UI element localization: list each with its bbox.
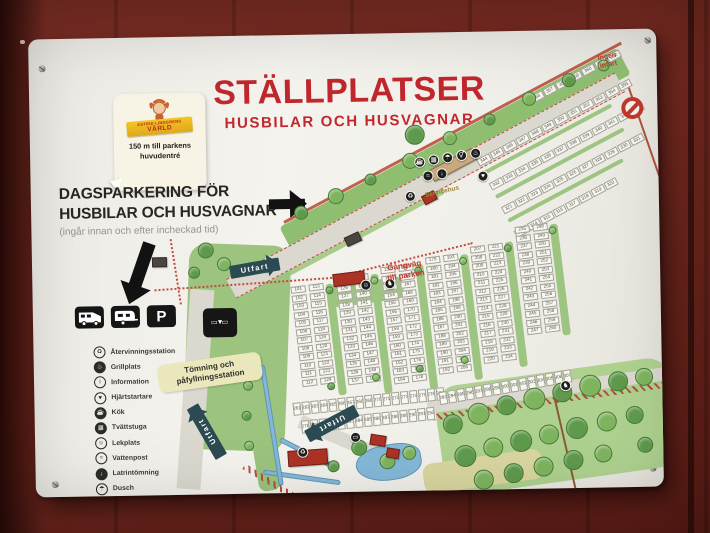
parking-spot: 142 — [357, 307, 373, 316]
parking-spot: 292 — [426, 407, 435, 421]
parking-spot: 191 — [437, 357, 453, 366]
walkway-dotted-path — [170, 239, 182, 305]
parking-spot: 129 — [339, 309, 355, 318]
parking-spot: 270 — [373, 394, 382, 408]
parking-spot: 185 — [431, 306, 447, 315]
parking-spot: 252 — [537, 257, 553, 266]
parking-spot: 137 — [348, 377, 364, 386]
parking-spot: 159 — [388, 333, 404, 342]
parking-spot: 190 — [436, 349, 452, 358]
parking-spot: 245 — [525, 310, 541, 319]
parking-spot: 170 — [403, 305, 419, 314]
parking-spot: 130 — [340, 318, 356, 327]
parking-spot: 289 — [399, 410, 408, 424]
parking-spot: 134 — [345, 351, 361, 360]
parking-spot: 251 — [535, 248, 551, 257]
parking-spot: 243 — [523, 293, 539, 302]
parking-spot: 210 — [473, 270, 489, 279]
parking-spot: 171 — [404, 314, 420, 323]
parking-spot: 235 — [514, 225, 530, 234]
parking-spot: 113 — [308, 283, 324, 292]
parking-spot: 187 — [433, 323, 449, 332]
parking-spot: 272 — [391, 392, 400, 406]
parking-spot: 136 — [347, 368, 363, 377]
parking-spot: 242 — [522, 284, 538, 293]
parking-spot: 164 — [394, 375, 410, 384]
parking-spot: 199 — [449, 304, 465, 313]
parking-spot: 206 — [456, 363, 472, 372]
parking-spot: 262 — [301, 401, 310, 415]
parking-spot: 144 — [359, 324, 375, 333]
parking-spot: 211 — [474, 279, 490, 288]
parking-spot: 250 — [534, 240, 550, 249]
tree — [372, 373, 380, 381]
photo-of-sign: STÄLLPLATSER HUSBILAR OCH HUSVAGNAR ASTR… — [0, 0, 710, 533]
parking-spot: 255 — [540, 282, 556, 291]
parking-spot: 167 — [400, 280, 416, 289]
parking-spot: 121 — [317, 350, 333, 359]
parking-spot: 237 — [516, 242, 532, 251]
parking-spot: 105 — [295, 319, 311, 328]
parking-spot: 120 — [316, 342, 332, 351]
parking-spot: 108 — [298, 344, 314, 353]
parking-spot: 219 — [482, 346, 498, 355]
parking-spot: 155 — [384, 299, 400, 308]
parking-spot: 172 — [405, 322, 421, 331]
wall-staple — [20, 40, 25, 44]
parking-spot: 256 — [541, 290, 557, 299]
parking-spot: 208 — [471, 253, 487, 262]
parking-spot: 145 — [360, 332, 376, 341]
parking-spot: 238 — [518, 251, 534, 260]
parking-spot: 264 — [319, 399, 328, 413]
parking-spot: 147 — [363, 349, 379, 358]
parking-spot: 157 — [386, 316, 402, 325]
parking-spot: 133 — [344, 343, 360, 352]
parking-spot: 254 — [539, 274, 555, 283]
parking-spot: 271 — [382, 393, 391, 407]
parking-spot: 247 — [527, 326, 543, 335]
parking-spot: 288 — [390, 411, 399, 425]
parking-spot: 175 — [408, 348, 424, 357]
parking-spot: 198 — [448, 296, 464, 305]
parking-spot: 239 — [519, 259, 535, 268]
parking-spot: 215 — [478, 313, 494, 322]
parking-spot: 221 — [488, 243, 504, 252]
parking-spot: 248 — [532, 223, 548, 232]
parking-spot: 116 — [311, 308, 327, 317]
parking-spot: 182 — [428, 281, 444, 290]
parking-spot: 200 — [450, 313, 466, 322]
parking-spot: 214 — [477, 304, 493, 313]
parking-spot: 148 — [364, 357, 380, 366]
parking-spot: 220 — [483, 355, 499, 364]
parking-spot: 141 — [356, 298, 372, 307]
parking-spot: 168 — [401, 289, 417, 298]
defibrillator-icon: ♥ — [477, 171, 488, 182]
parking-spot: 232 — [499, 335, 515, 344]
hut-building — [152, 257, 167, 267]
parking-spot: 115 — [310, 300, 326, 309]
parking-spot: 176 — [409, 356, 425, 365]
parking-spot: 320 — [603, 177, 619, 190]
parking-spot: 209 — [472, 262, 488, 271]
parking-spot: 261 — [292, 402, 301, 416]
parking-spot: 104 — [294, 310, 310, 319]
parking-spot: 207 — [470, 245, 486, 254]
parking-spot: 212 — [475, 287, 491, 296]
parking-spot: 156 — [385, 308, 401, 317]
parking-spot: 258 — [543, 307, 559, 316]
parking-spot: 241 — [521, 276, 537, 285]
parking-spot: 186 — [432, 315, 448, 324]
parking-spot: 285 — [363, 413, 372, 427]
parking-spot: 119 — [315, 333, 331, 342]
parking-spot: 188 — [434, 332, 450, 341]
parking-spot: 197 — [447, 287, 463, 296]
parking-spot: 114 — [309, 291, 325, 300]
parking-spot: 286 — [372, 412, 381, 426]
parking-spot: 123 — [319, 367, 335, 376]
parking-spot: 216 — [479, 321, 495, 330]
parking-spot: 217 — [480, 329, 496, 338]
site-map: 3563573583593603613623443453463473483493… — [28, 29, 664, 498]
tree — [327, 382, 335, 390]
parking-spot: 184 — [430, 298, 446, 307]
parking-spot: 331 — [629, 133, 645, 146]
parking-spot: 201 — [451, 321, 467, 330]
tree — [461, 356, 469, 364]
parking-spot: 269 — [364, 395, 373, 409]
parking-spot: 222 — [489, 251, 505, 260]
parking-spot: 111 — [301, 370, 317, 379]
parking-spot: 290 — [408, 409, 417, 423]
shed-building — [386, 447, 400, 459]
tree — [504, 244, 512, 252]
parking-spot: 112 — [302, 378, 318, 387]
parking-spot: 253 — [538, 265, 554, 274]
parking-spot: 291 — [417, 408, 426, 422]
parking-spot: 246 — [526, 318, 542, 327]
parking-spot: 257 — [542, 299, 558, 308]
parking-spot: 274 — [409, 390, 418, 404]
parking-spot: 158 — [387, 325, 403, 334]
parking-spot: 118 — [314, 325, 330, 334]
parking-spot: 132 — [342, 334, 358, 343]
parking-spot: 128 — [338, 301, 354, 310]
parking-spot: 146 — [361, 341, 377, 350]
parking-spot: 102 — [291, 294, 307, 303]
tree — [416, 365, 424, 373]
parking-spot: 227 — [494, 293, 510, 302]
parking-spot: 110 — [300, 361, 316, 370]
parking-spot: 160 — [389, 342, 405, 351]
parking-spot: 230 — [497, 319, 513, 328]
dump-station-sign: ▭ ▭ ▼ — [203, 308, 238, 338]
parking-spot: 228 — [495, 302, 511, 311]
parking-spot: 162 — [391, 358, 407, 367]
parking-spot: 268 — [355, 396, 364, 410]
parking-spot: 276 — [427, 388, 436, 402]
parking-spot: 273 — [400, 391, 409, 405]
parking-spot: 174 — [407, 339, 423, 348]
parking-spot: 192 — [438, 365, 454, 374]
shed-building — [369, 434, 387, 447]
parking-spot: 275 — [418, 389, 427, 403]
wall-groove — [688, 0, 694, 533]
parking-spot: 178 — [412, 373, 428, 382]
parking-spot: 131 — [341, 326, 357, 335]
parking-spot: 229 — [496, 310, 512, 319]
parking-spot: 287 — [381, 412, 390, 426]
parking-spot: 213 — [476, 296, 492, 305]
parking-spot: 169 — [402, 297, 418, 306]
parking-spot: 202 — [452, 329, 468, 338]
parking-spot: 234 — [501, 352, 517, 361]
parking-spot: 226 — [493, 285, 509, 294]
parking-spot: 240 — [520, 267, 536, 276]
tree — [405, 125, 425, 145]
parking-spot: 249 — [533, 231, 549, 240]
parking-spot: 189 — [435, 340, 451, 349]
parking-spot: 260 — [545, 324, 561, 333]
parking-spot: 135 — [346, 360, 362, 369]
parking-spot: 203 — [453, 338, 469, 347]
parking-spot: 259 — [544, 316, 560, 325]
parking-spot: 117 — [313, 317, 329, 326]
parking-spot: 218 — [481, 338, 497, 347]
parking-spot: 204 — [454, 346, 470, 355]
parking-spot: 244 — [524, 301, 540, 310]
parking-spot: 183 — [429, 290, 445, 299]
sign-board: STÄLLPLATSER HUSBILAR OCH HUSVAGNAR ASTR… — [28, 29, 664, 498]
parking-spot: 143 — [358, 315, 374, 324]
parking-spot: 103 — [292, 302, 308, 311]
tree — [459, 257, 467, 265]
parking-spot: 161 — [390, 350, 406, 359]
parking-spot: 265 — [328, 398, 337, 412]
parking-spot: 106 — [296, 327, 312, 336]
parking-spot: 233 — [500, 344, 516, 353]
parking-spot: 163 — [393, 367, 409, 376]
parking-spot: 122 — [318, 359, 334, 368]
parking-spot: 223 — [490, 260, 506, 269]
parking-spot: 107 — [297, 336, 313, 345]
parking-spot: 225 — [492, 276, 508, 285]
parking-spot: 224 — [491, 268, 507, 277]
parking-spot: 263 — [310, 400, 319, 414]
parking-spot: 231 — [498, 327, 514, 336]
parking-spot: 101 — [290, 285, 306, 294]
parking-spot: 236 — [515, 234, 531, 243]
parking-spot: 173 — [406, 331, 422, 340]
parking-spot: 196 — [446, 279, 462, 288]
parking-spot: 109 — [299, 353, 315, 362]
